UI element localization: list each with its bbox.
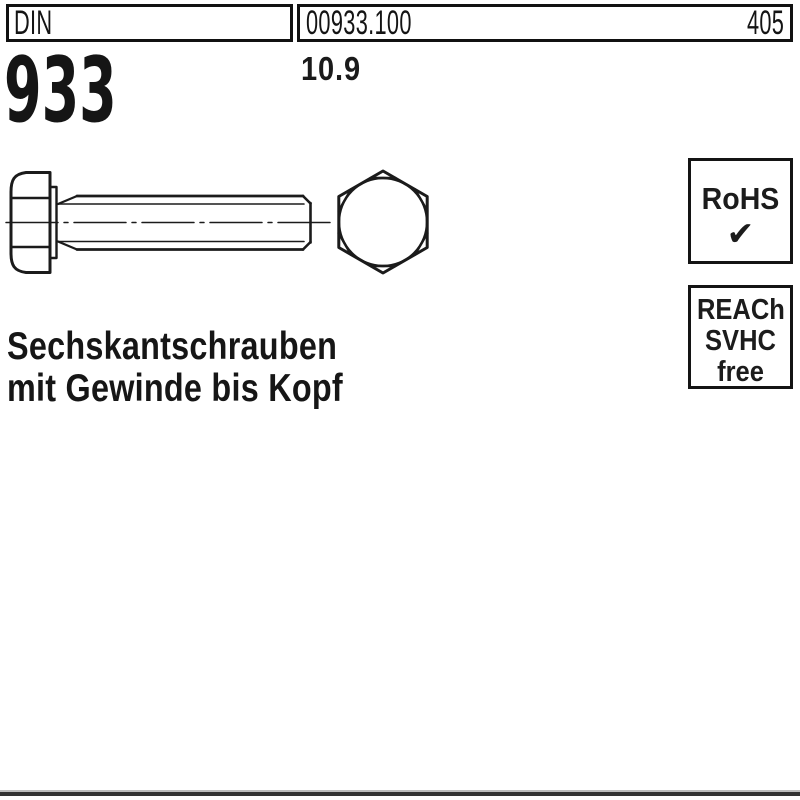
bolt-front-view-drawing (339, 171, 428, 273)
free-label: free (697, 357, 784, 388)
strength-class: 10.9 (301, 52, 361, 85)
rohs-label: RoHS (695, 183, 786, 214)
hex-head-outline (339, 171, 427, 273)
reach-label: REACh (697, 295, 784, 326)
reach-badge: REACh SVHC free (688, 285, 793, 389)
article-header-box: 00933.100 405 (297, 4, 793, 42)
washer-face-circle (339, 178, 427, 266)
checkmark-icon: ✔ (691, 216, 790, 252)
din-label: DIN (14, 6, 52, 40)
title-line-2: mit Gewinde bis Kopf (7, 369, 343, 408)
bolt-technical-drawing (0, 150, 450, 290)
bolt-side-view-drawing (6, 173, 330, 273)
rohs-badge: RoHS ✔ (688, 158, 793, 264)
catalog-page-number: 405 (747, 6, 784, 40)
thread-runout-bottom (58, 242, 77, 250)
bottom-bar (0, 792, 800, 796)
title-line-1: Sechskantschrauben (7, 327, 337, 366)
thread-runout-top (58, 196, 77, 204)
svhc-label: SVHC (697, 326, 784, 357)
article-number: 00933.100 (306, 6, 412, 40)
standard-number: 933 (4, 46, 117, 136)
catalog-page: { "header": { "din_label": "DIN", "artic… (0, 0, 800, 800)
din-header-box: DIN (6, 4, 293, 42)
